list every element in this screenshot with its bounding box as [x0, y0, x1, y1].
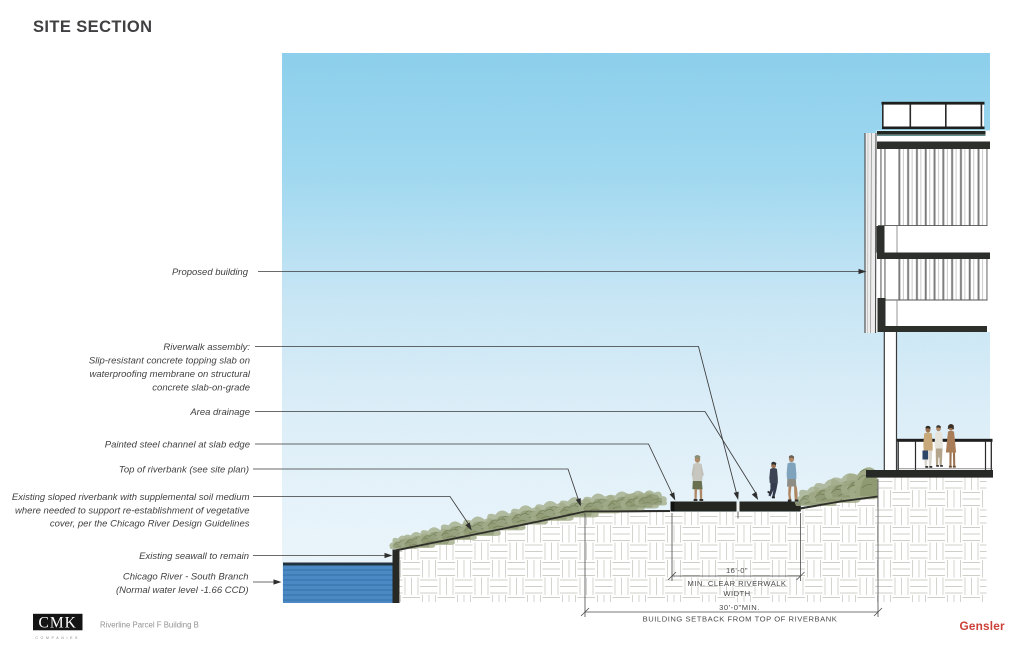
svg-text:Existing seawall to remain: Existing seawall to remain	[139, 551, 249, 562]
svg-text:cover, per the Chicago River D: cover, per the Chicago River Design Guid…	[50, 518, 250, 529]
svg-text:Top of riverbank (see site pla: Top of riverbank (see site plan)	[119, 464, 249, 475]
svg-text:Existing sloped riverbank with: Existing sloped riverbank with supplemen…	[12, 492, 250, 503]
svg-text:MIN. CLEAR RIVERWALK: MIN. CLEAR RIVERWALK	[688, 579, 787, 588]
svg-text:Chicago River - South Branch: Chicago River - South Branch	[123, 571, 249, 582]
svg-text:(Normal water level -1.66 CCD): (Normal water level -1.66 CCD)	[116, 585, 249, 596]
svg-text:WIDTH: WIDTH	[723, 589, 750, 598]
svg-text:SITE SECTION: SITE SECTION	[33, 18, 152, 36]
svg-text:Slip-resistant concrete toppin: Slip-resistant concrete topping slab on	[89, 356, 250, 367]
svg-text:waterproofing membrane on stru: waterproofing membrane on structural	[89, 369, 250, 380]
svg-text:COMPANIES: COMPANIES	[35, 636, 80, 640]
svg-text:Proposed building: Proposed building	[172, 267, 249, 278]
svg-text:CMK: CMK	[39, 615, 77, 632]
svg-text:30'-0"MIN.: 30'-0"MIN.	[719, 603, 760, 612]
svg-text:where needed to support re-est: where needed to support re-establishment…	[15, 505, 249, 516]
svg-text:Gensler: Gensler	[960, 619, 1006, 633]
svg-text:Riverline Parcel F Building B: Riverline Parcel F Building B	[100, 621, 199, 630]
svg-text:BUILDING SETBACK FROM TOP OF R: BUILDING SETBACK FROM TOP OF RIVERBANK	[643, 614, 838, 623]
svg-text:Riverwalk assembly:: Riverwalk assembly:	[163, 342, 250, 353]
svg-text:16'-0": 16'-0"	[726, 566, 748, 575]
svg-text:Area drainage: Area drainage	[189, 407, 250, 418]
svg-text:Painted steel channel at slab: Painted steel channel at slab edge	[105, 439, 250, 450]
svg-text:concrete slab-on-grade: concrete slab-on-grade	[152, 383, 250, 394]
